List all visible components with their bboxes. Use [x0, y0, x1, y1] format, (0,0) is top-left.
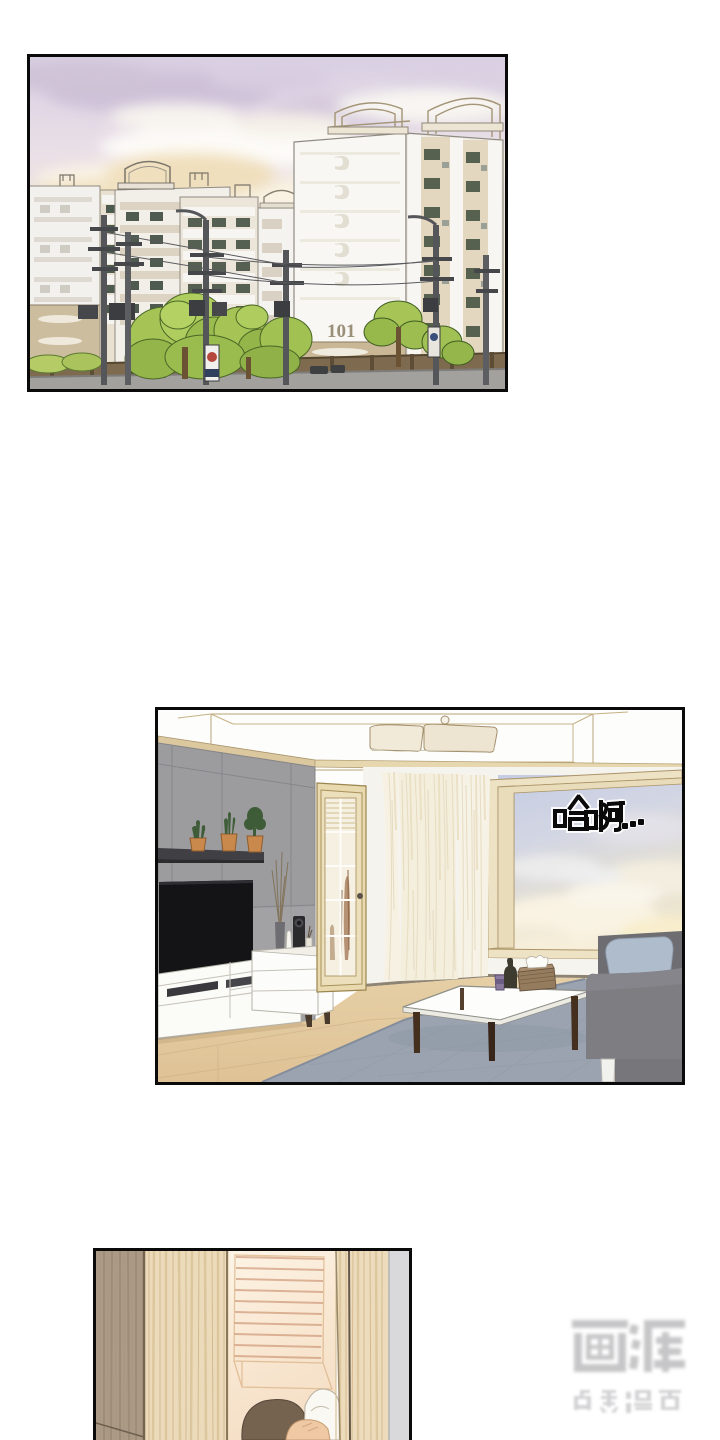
svg-text:101: 101	[327, 321, 356, 342]
